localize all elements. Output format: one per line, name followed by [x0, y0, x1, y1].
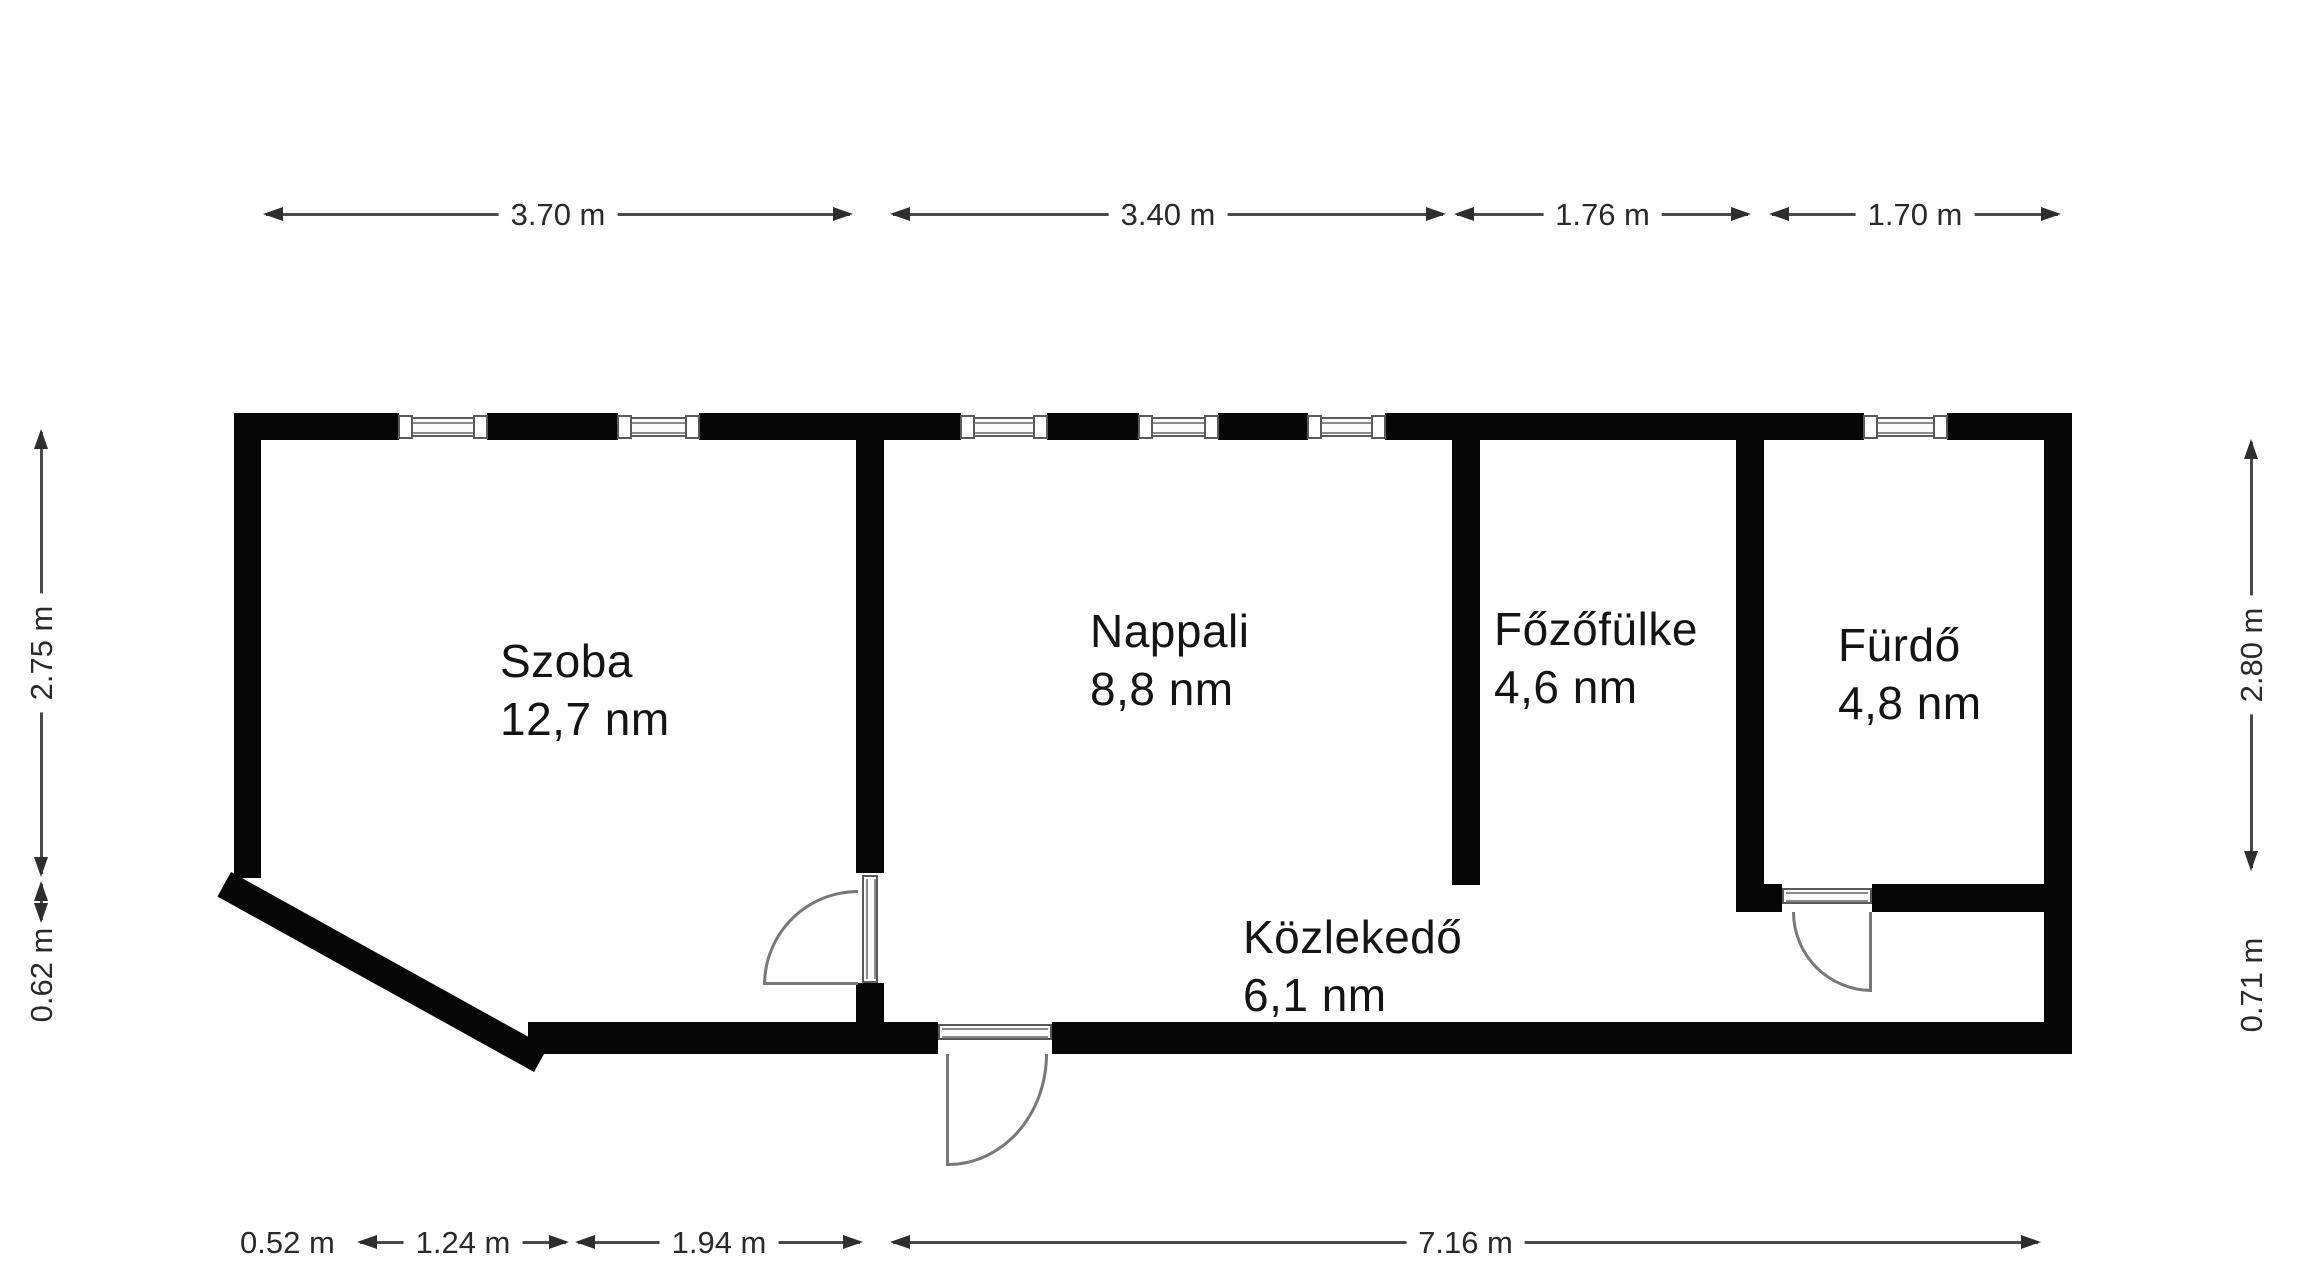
- arrowhead-left-icon: [575, 1235, 595, 1249]
- room-name: Fürdő: [1838, 616, 1982, 674]
- szoba-door-leaf: [763, 982, 858, 985]
- wall-left: [234, 413, 261, 878]
- arrowhead-left-icon: [263, 207, 283, 221]
- window-cap: [617, 415, 632, 439]
- room-area: 4,8 nm: [1838, 674, 1982, 732]
- wall-right: [2044, 413, 2072, 1054]
- arrowhead-left-icon: [890, 207, 910, 221]
- window-furdo: [1864, 417, 1947, 437]
- arrowhead-right-icon: [1426, 207, 1446, 221]
- floor-plan: Szoba 12,7 nm Nappali 8,8 nm Főzőfülke 4…: [0, 0, 2311, 1280]
- room-label-kozlekedo: Közlekedő 6,1 nm: [1243, 908, 1462, 1024]
- arrowhead-right-icon: [549, 1235, 569, 1249]
- room-label-furdo: Fürdő 4,8 nm: [1838, 616, 1982, 732]
- room-area: 8,8 nm: [1090, 660, 1250, 718]
- window-cap: [1933, 415, 1948, 439]
- room-name: Szoba: [500, 632, 670, 690]
- room-label-nappali: Nappali 8,8 nm: [1090, 602, 1250, 718]
- wall-furdo-bottom-segment: [1736, 884, 1782, 912]
- room-name: Főzőfülke: [1494, 600, 1698, 658]
- window-nappali-1: [961, 417, 1047, 437]
- dimension-label: 1.76 m: [1543, 197, 1662, 233]
- window-cap: [960, 415, 975, 439]
- dimension-label: 2.80 m: [2234, 596, 2270, 715]
- window-cap: [685, 415, 700, 439]
- dimension-right-071: 0.71 m: [2234, 938, 2270, 1033]
- room-label-szoba: Szoba 12,7 nm: [500, 632, 670, 748]
- szoba-door-arc: [763, 890, 858, 985]
- wall-top-segment: [1218, 413, 1308, 440]
- szoba-door: [862, 875, 878, 983]
- wall-nappali-kozlekedo: [1452, 440, 1480, 885]
- window-cap: [398, 415, 413, 439]
- dimension-label: 1.24 m: [404, 1225, 523, 1261]
- room-label-fozofulke: Főzőfülke 4,6 nm: [1494, 600, 1698, 716]
- window-cap: [1307, 415, 1322, 439]
- window-cap: [1371, 415, 1386, 439]
- wall-top-segment: [699, 413, 961, 440]
- window-szoba-1: [399, 417, 487, 437]
- room-name: Közlekedő: [1243, 908, 1462, 966]
- wall-diagonal: [217, 872, 547, 1072]
- arrowhead-up-icon: [34, 429, 48, 449]
- window-cap: [1033, 415, 1048, 439]
- window-cap: [1138, 415, 1153, 439]
- arrowhead-up-icon: [34, 881, 48, 901]
- arrowhead-down-icon: [2244, 851, 2258, 871]
- arrowhead-left-icon: [1769, 207, 1789, 221]
- entrance-door-arc: [948, 1054, 1048, 1166]
- window-nappali-2: [1139, 417, 1218, 437]
- dimension-label: 3.70 m: [499, 197, 618, 233]
- furdo-door: [1782, 888, 1872, 904]
- arrowhead-right-icon: [843, 1235, 863, 1249]
- entrance-door: [938, 1024, 1052, 1040]
- wall-szoba-stub: [856, 983, 884, 1024]
- window-nappali-3: [1308, 417, 1385, 437]
- arrowhead-left-icon: [890, 1235, 910, 1249]
- room-area: 12,7 nm: [500, 690, 670, 748]
- wall-top-segment: [487, 413, 618, 440]
- window-cap: [1863, 415, 1878, 439]
- arrowhead-right-icon: [2021, 1235, 2041, 1249]
- wall-bottom-segment: [528, 1022, 938, 1054]
- dimension-label: 1.94 m: [660, 1225, 779, 1261]
- wall-top-segment: [1047, 413, 1139, 440]
- window-cap: [1204, 415, 1219, 439]
- arrowhead-right-icon: [1731, 207, 1751, 221]
- wall-furdo-bottom-segment: [1872, 884, 2044, 912]
- wall-szoba-nappali: [856, 440, 884, 873]
- arrowhead-right-icon: [833, 207, 853, 221]
- room-area: 6,1 nm: [1243, 966, 1462, 1024]
- dimension-label: 3.40 m: [1109, 197, 1228, 233]
- wall-fozofulke-furdo: [1736, 440, 1764, 912]
- window-cap: [473, 415, 488, 439]
- arrowhead-right-icon: [2041, 207, 2061, 221]
- room-area: 4,6 nm: [1494, 658, 1698, 716]
- arrowhead-left-icon: [357, 1235, 377, 1249]
- arrowhead-up-icon: [2244, 439, 2258, 459]
- arrowhead-down-icon: [34, 903, 48, 923]
- dimension-label: 2.75 m: [24, 594, 60, 713]
- furdo-door-arc: [1792, 912, 1872, 992]
- dimension-label: 7.16 m: [1406, 1225, 1525, 1261]
- dimension-left-062: 0.62 m: [24, 928, 60, 1023]
- arrowhead-down-icon: [34, 857, 48, 877]
- window-szoba-2: [618, 417, 699, 437]
- room-name: Nappali: [1090, 602, 1250, 660]
- wall-top-segment: [1385, 413, 1864, 440]
- arrowhead-left-icon: [1454, 207, 1474, 221]
- dimension-label: 1.70 m: [1856, 197, 1975, 233]
- wall-bottom-segment: [1052, 1022, 2072, 1054]
- dimension-bottom-052: 0.52 m: [240, 1225, 335, 1261]
